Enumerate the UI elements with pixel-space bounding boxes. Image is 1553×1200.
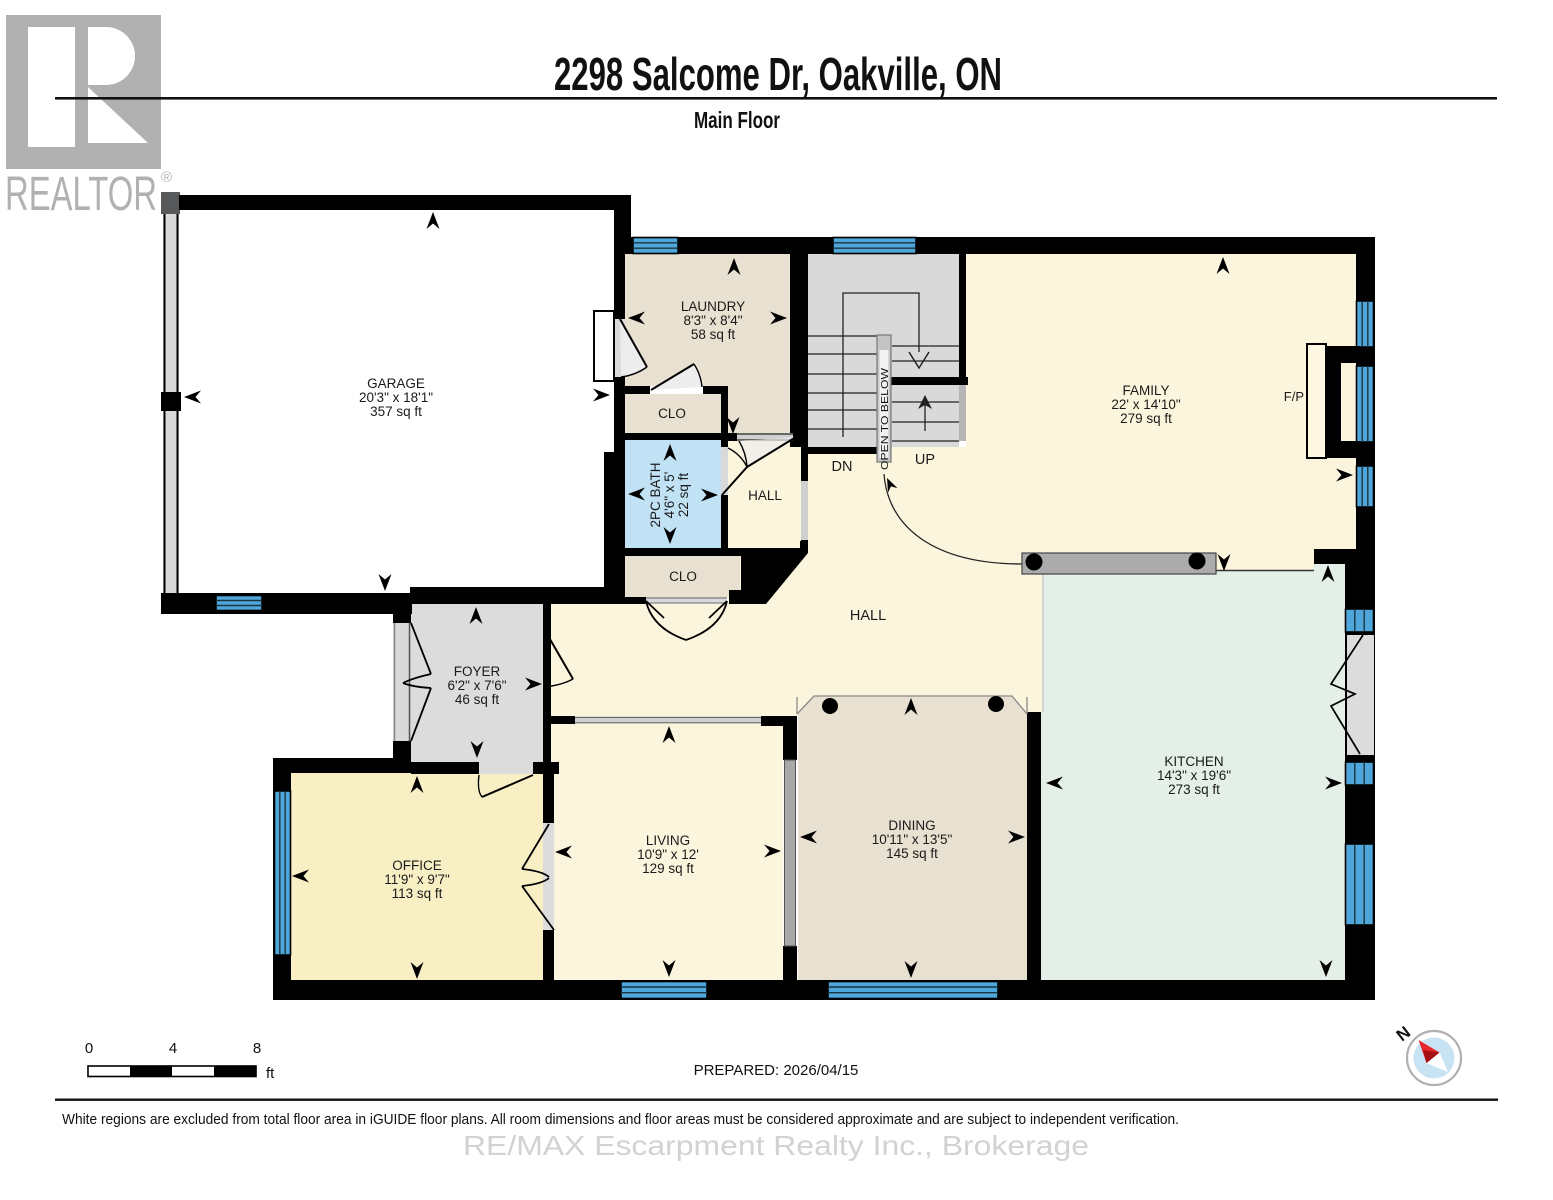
svg-text:RE/MAX Escarpment Realty Inc.,: RE/MAX Escarpment Realty Inc., Brokerage [463, 1130, 1089, 1161]
svg-text:HALL: HALL [748, 488, 782, 503]
svg-text:10'9" x 12': 10'9" x 12' [637, 847, 699, 862]
svg-text:FOYER: FOYER [454, 664, 501, 679]
svg-text:HALL: HALL [850, 608, 886, 624]
svg-text:22' x 14'10": 22' x 14'10" [1111, 397, 1180, 412]
svg-text:8: 8 [253, 1040, 261, 1057]
svg-text:CLO: CLO [669, 569, 697, 584]
svg-text:14'3" x 19'6": 14'3" x 19'6" [1157, 768, 1231, 783]
svg-text:357 sq ft: 357 sq ft [370, 404, 422, 419]
svg-text:113 sq ft: 113 sq ft [392, 886, 443, 901]
svg-text:®: ® [161, 169, 172, 186]
svg-text:2298 Salcome Dr, Oakville, ON: 2298 Salcome Dr, Oakville, ON [554, 48, 1002, 100]
svg-text:FAMILY: FAMILY [1122, 383, 1169, 398]
svg-text:58 sq ft: 58 sq ft [691, 327, 736, 342]
svg-text:6'2" x 7'6": 6'2" x 7'6" [447, 678, 506, 693]
svg-text:2PC BATH: 2PC BATH [648, 462, 663, 527]
svg-text:DN: DN [832, 459, 853, 475]
svg-text:46 sq ft: 46 sq ft [455, 692, 500, 707]
svg-text:11'9" x 9'7": 11'9" x 9'7" [384, 872, 450, 887]
svg-text:273 sq ft: 273 sq ft [1168, 782, 1220, 797]
svg-text:White regions are excluded fro: White regions are excluded from total fl… [62, 1112, 1179, 1128]
svg-text:ft: ft [266, 1065, 275, 1082]
svg-text:LAUNDRY: LAUNDRY [681, 299, 745, 314]
svg-text:4: 4 [169, 1040, 177, 1057]
svg-text:4'6" x 5': 4'6" x 5' [662, 472, 677, 519]
svg-text:10'11" x 13'5": 10'11" x 13'5" [872, 832, 953, 847]
svg-text:279 sq ft: 279 sq ft [1120, 411, 1172, 426]
svg-text:REALTOR: REALTOR [5, 168, 157, 221]
svg-text:CLO: CLO [658, 406, 686, 421]
svg-text:UP: UP [915, 452, 935, 468]
svg-text:20'3" x 18'1": 20'3" x 18'1" [359, 390, 433, 405]
svg-text:OPEN TO BELOW: OPEN TO BELOW [879, 368, 891, 470]
svg-text:DINING: DINING [888, 818, 935, 833]
svg-text:Main Floor: Main Floor [694, 107, 780, 133]
svg-text:0: 0 [85, 1040, 93, 1057]
svg-text:F/P: F/P [1284, 389, 1304, 404]
svg-text:LIVING: LIVING [646, 833, 690, 848]
svg-text:GARAGE: GARAGE [367, 376, 425, 391]
svg-text:KITCHEN: KITCHEN [1164, 754, 1223, 769]
svg-text:8'3" x 8'4": 8'3" x 8'4" [683, 313, 742, 328]
svg-text:OFFICE: OFFICE [392, 858, 442, 873]
svg-text:145 sq ft: 145 sq ft [886, 846, 938, 861]
svg-text:PREPARED: 2026/04/15: PREPARED: 2026/04/15 [694, 1062, 859, 1079]
svg-text:129 sq ft: 129 sq ft [642, 861, 694, 876]
svg-text:22 sq ft: 22 sq ft [676, 473, 691, 518]
